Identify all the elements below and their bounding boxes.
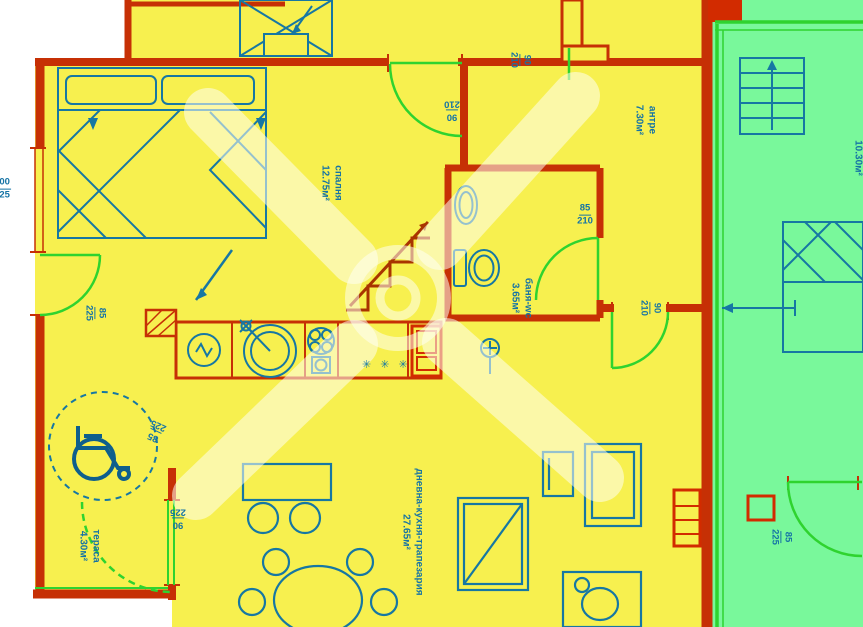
floor-plan-drawing <box>0 0 863 627</box>
floor-plan: спалня 12.75м² антре 7.30м² баня-wc 3.65… <box>0 0 863 627</box>
wall-block <box>708 0 742 22</box>
